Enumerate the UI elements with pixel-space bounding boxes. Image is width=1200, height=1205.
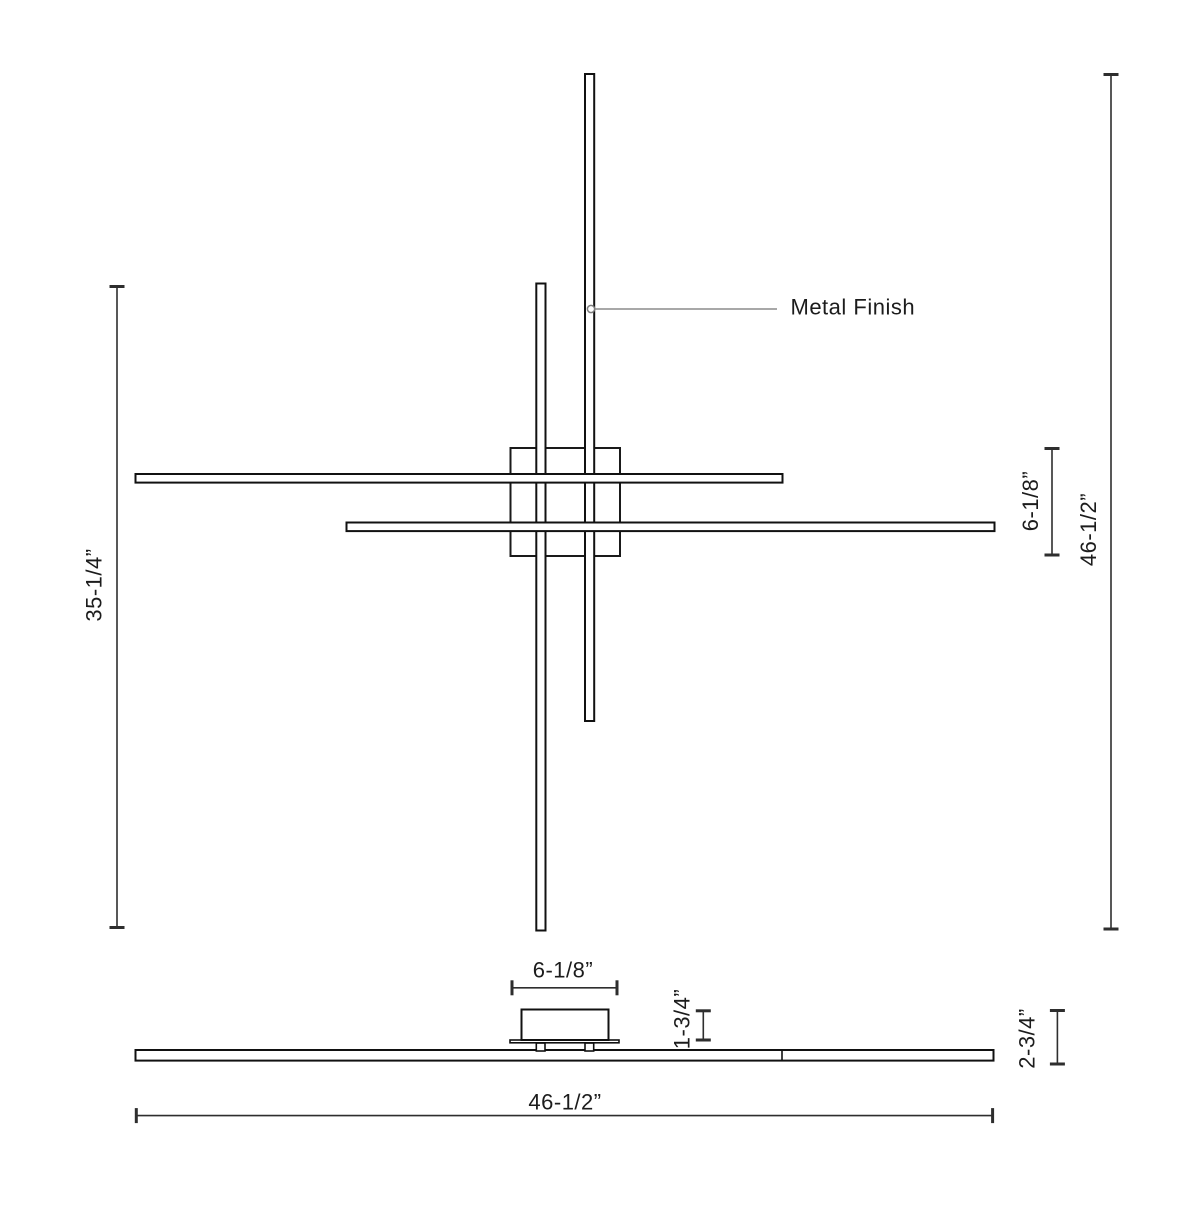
svg-text:46-1/2”: 46-1/2” — [1076, 493, 1101, 566]
svg-text:35-1/4”: 35-1/4” — [81, 548, 106, 621]
svg-text:1-3/4”: 1-3/4” — [669, 989, 694, 1049]
svg-text:2-3/4”: 2-3/4” — [1014, 1008, 1039, 1068]
svg-text:6-1/8”: 6-1/8” — [533, 958, 593, 983]
svg-text:Metal Finish: Metal Finish — [791, 295, 916, 320]
svg-text:6-1/8”: 6-1/8” — [1018, 471, 1043, 531]
svg-text:46-1/2”: 46-1/2” — [528, 1090, 601, 1115]
